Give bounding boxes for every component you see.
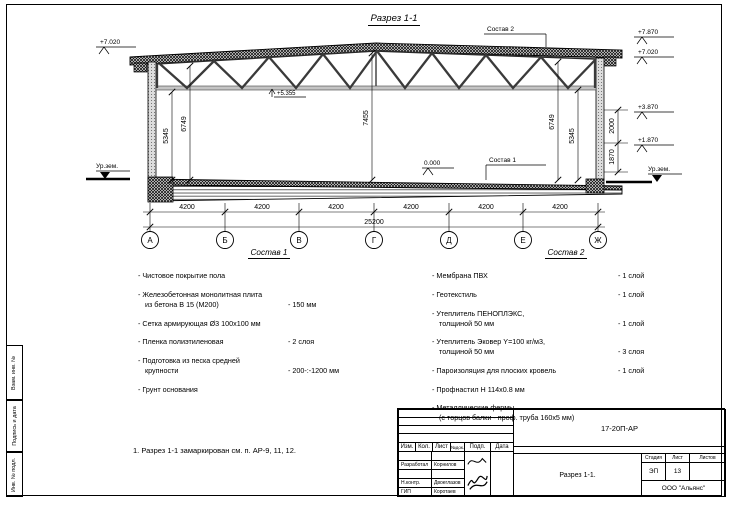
note-text: 1. Разрез 1-1 замаркирован см. п. АР-9, … — [133, 446, 296, 455]
title-block: Изм. Кол. Лист №док. Подп. Дата Разработ… — [397, 408, 725, 497]
margin-box-vzam: Взам. инв. № — [6, 345, 23, 400]
list-item: - Утеплитель Эковер Y=100 кг/м3, толщино… — [432, 337, 700, 357]
list-item: - Утеплитель ПЕНОПЛЭКС, толщиной 50 мм- … — [432, 309, 700, 329]
signature-scribbles — [465, 452, 490, 496]
sostav1-list: Состав 1 - Чистовое покрытие пола - Желе… — [138, 247, 400, 403]
list-item: - Чистовое покрытие пола — [138, 271, 400, 281]
page-title: Разрез 1-1 — [344, 13, 444, 24]
date-cell — [490, 451, 514, 497]
list-item: - Геотекстиль- 1 слой — [432, 290, 700, 300]
list-item: - Пароизоляция для плоских кровель- 1 сл… — [432, 366, 700, 376]
drawing-sheet: { "sheet": { "title": "Разрез 1-1", "not… — [0, 0, 731, 507]
list-item: - Железобетонная монолитная плита из бет… — [138, 290, 400, 310]
drawing-name: Разрез 1-1. — [513, 453, 642, 497]
margin-box-inv: Инв. № подл. — [6, 452, 23, 497]
sostav1-heading: Состав 1 — [138, 247, 400, 258]
list-item: - Сетка армирующая Ø3 100x100 мм — [138, 319, 400, 329]
list-item: - Мембрана ПВХ- 1 слой — [432, 271, 700, 281]
sheets-total — [689, 462, 726, 481]
signer-name: Коротаев — [431, 487, 465, 497]
list-item: - Профнастил Н 114x0.8 мм — [432, 385, 700, 395]
sheet-number: 13 — [665, 462, 690, 481]
list-item: - Грунт основания — [138, 385, 400, 395]
doc-code: 17-20П-АР — [513, 409, 726, 447]
sostav2-heading: Состав 2 — [432, 247, 700, 258]
list-item: - Подготовка из песка средней крупности-… — [138, 356, 400, 376]
margin-box-podpis: Подпись и дата — [6, 400, 23, 452]
list-item: - Пленка полиэтиленовая- 2 слоя — [138, 337, 400, 347]
signature-cell — [464, 451, 491, 497]
company-name: ООО "Альянс" — [641, 480, 726, 497]
sostav2-list: Состав 2 - Мембрана ПВХ- 1 слой - Геотек… — [432, 247, 700, 432]
stage-value: ЭП — [641, 462, 666, 481]
signer-role: ГИП — [398, 487, 432, 497]
